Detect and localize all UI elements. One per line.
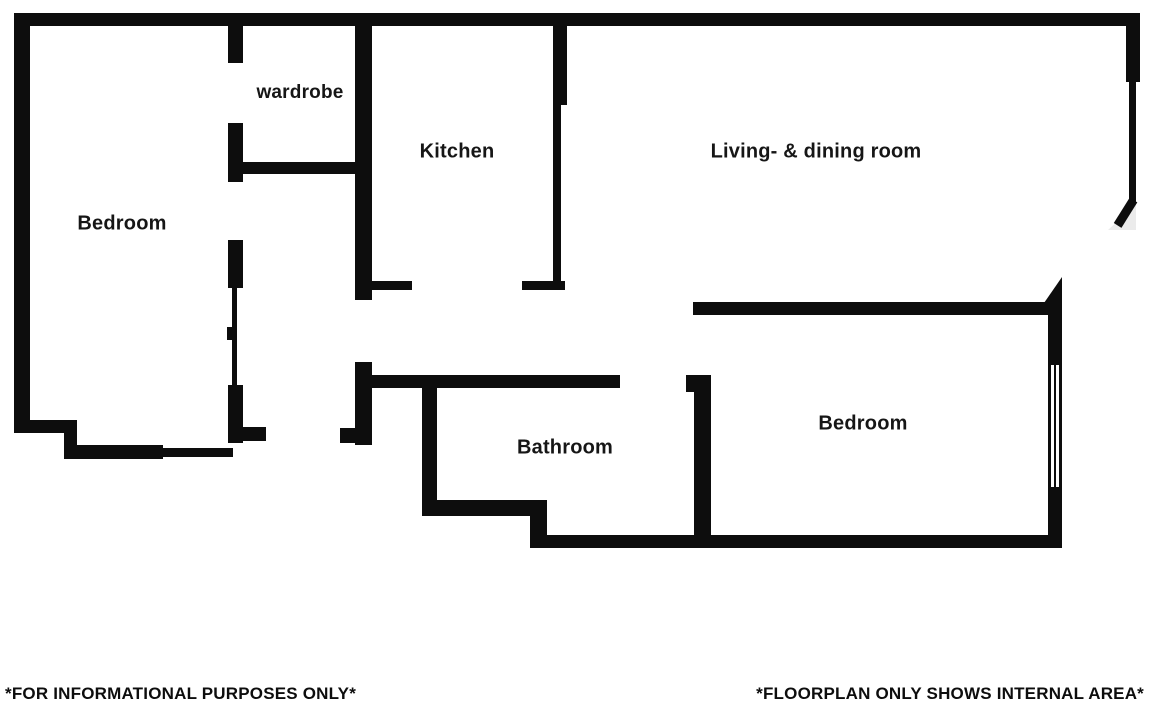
footer-disclaimer-right: *FLOORPLAN ONLY SHOWS INTERNAL AREA* — [756, 684, 1144, 704]
wall-bedroom2-right-upper — [1048, 302, 1062, 366]
bedroom1-door-nub — [227, 327, 237, 340]
wall-hall-stub-right — [340, 428, 355, 443]
wall-kitchen-bottom-stub-b — [522, 281, 565, 290]
wall-hall-stub-left — [243, 427, 266, 441]
wall-bedroom2-left — [694, 375, 711, 548]
wall-bathroom-left — [422, 388, 437, 515]
wall-bathroom-bottom — [422, 500, 547, 516]
wall-kitchen-bottom-stub-a — [372, 281, 412, 290]
wall-bedroom1-right-c — [228, 240, 243, 288]
wall-exterior-top — [14, 13, 1140, 26]
bedroom2-window — [1048, 365, 1062, 487]
room-label-kitchen: Kitchen — [420, 141, 495, 164]
room-label-bedroom-right: Bedroom — [818, 413, 907, 436]
footer-disclaimer-left: *FOR INFORMATIONAL PURPOSES ONLY* — [5, 684, 356, 704]
room-label-living-dining: Living- & dining room — [711, 141, 922, 164]
wall-bedroom1-bottom-thick — [64, 445, 163, 459]
wall-bedroom1-right-d — [228, 385, 243, 443]
living-right-window — [1129, 82, 1136, 203]
wall-bedroom2-top — [693, 302, 1062, 315]
wall-bathroom-step — [530, 500, 547, 548]
wall-wardrobe-bottom — [243, 162, 372, 174]
wall-bedroom2-bottom — [530, 535, 1062, 548]
floorplan-canvas: Bedroom wardrobe Kitchen Living- & dinin… — [0, 0, 1154, 712]
bedroom2-door-bevel — [1044, 277, 1062, 303]
wall-kitchen-living-upper — [553, 13, 567, 105]
wall-bedroom1-right-a — [228, 26, 243, 63]
wall-kitchen-living-lower — [553, 105, 561, 281]
wall-bedroom1-bottom-thin — [160, 448, 233, 457]
wall-living-right-corner — [1126, 13, 1140, 82]
wall-bathroom-top — [368, 375, 620, 388]
wall-bedroom1-bottom-upper — [14, 420, 77, 433]
wall-kitchen-left-upper — [355, 13, 372, 300]
wall-exterior-left — [14, 13, 30, 433]
room-label-bedroom-left: Bedroom — [77, 213, 166, 236]
room-label-wardrobe: wardrobe — [256, 82, 343, 104]
wall-bedroom1-right-b — [228, 123, 243, 182]
room-label-bathroom: Bathroom — [517, 437, 613, 460]
